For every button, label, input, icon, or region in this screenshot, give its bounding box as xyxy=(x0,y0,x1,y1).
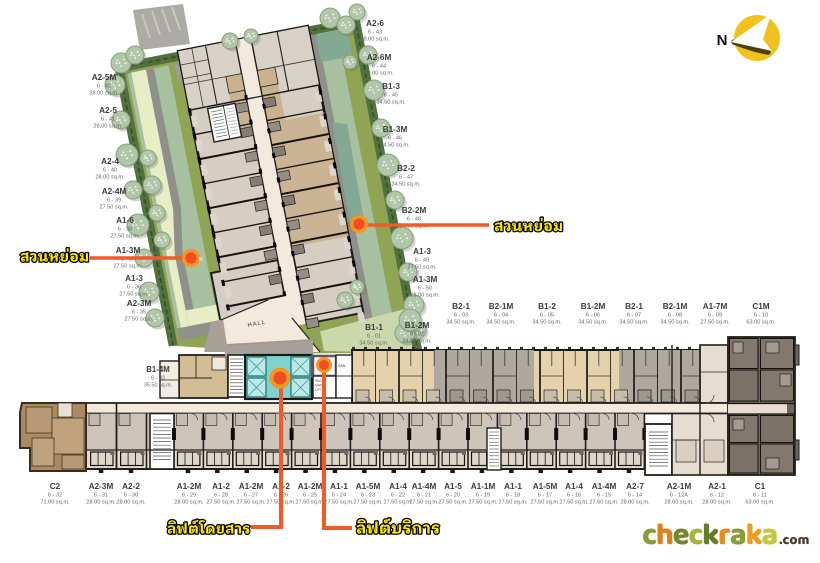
svg-text:6 - 36: 6 - 36 xyxy=(127,285,141,291)
svg-text:A1-3: A1-3 xyxy=(125,274,143,283)
svg-text:27.50 sq.m.: 27.50 sq.m. xyxy=(113,264,143,270)
svg-text:6 - 20: 6 - 20 xyxy=(446,493,460,499)
svg-text:B1-3: B1-3 xyxy=(382,82,400,91)
svg-text:6 - 38: 6 - 38 xyxy=(118,227,132,233)
svg-text:6 - 46: 6 - 46 xyxy=(388,136,402,142)
svg-text:A1-5: A1-5 xyxy=(444,482,462,491)
svg-text:A2-5M: A2-5M xyxy=(92,73,117,82)
svg-text:28.00 sq.m.: 28.00 sq.m. xyxy=(116,500,146,506)
svg-text:LIFT: LIFT xyxy=(315,388,322,392)
svg-text:6 - 16: 6 - 16 xyxy=(567,493,581,499)
svg-text:A1-5M: A1-5M xyxy=(356,482,381,491)
svg-text:6 - 12A: 6 - 12A xyxy=(670,493,688,499)
svg-text:6 - 02: 6 - 02 xyxy=(410,332,424,338)
svg-text:28.00 sq.m.: 28.00 sq.m. xyxy=(702,500,732,506)
svg-text:A2-1: A2-1 xyxy=(708,482,726,491)
svg-text:34.50 sq.m.: 34.50 sq.m. xyxy=(486,320,516,326)
svg-text:27.50 sq.m.: 27.50 sq.m. xyxy=(206,500,236,506)
svg-text:PAS.: PAS. xyxy=(315,379,323,383)
svg-text:6 - 04: 6 - 04 xyxy=(494,313,508,319)
svg-text:27.50 sq.m.: 27.50 sq.m. xyxy=(559,500,589,506)
svg-text:6 - 05: 6 - 05 xyxy=(540,313,554,319)
svg-text:63.00 sq.m.: 63.00 sq.m. xyxy=(745,500,775,506)
svg-text:6 - 43: 6 - 43 xyxy=(368,30,382,36)
svg-text:35.50 sq.m.: 35.50 sq.m. xyxy=(144,383,172,389)
svg-text:A2-4M: A2-4M xyxy=(102,187,127,196)
svg-text:28.00 sq.m.: 28.00 sq.m. xyxy=(86,500,116,506)
svg-text:6 - 09: 6 - 09 xyxy=(708,313,722,319)
svg-text:6 - 31: 6 - 31 xyxy=(94,493,108,499)
svg-text:A2-6: A2-6 xyxy=(366,19,384,28)
svg-text:G: G xyxy=(346,223,350,229)
svg-text:6 - 23: 6 - 23 xyxy=(361,493,375,499)
svg-text:6 - 47: 6 - 47 xyxy=(399,175,413,181)
svg-text:A1-7M: A1-7M xyxy=(703,302,728,311)
svg-text:6 - 25: 6 - 25 xyxy=(303,493,317,499)
svg-text:B2-1M: B2-1M xyxy=(489,302,514,311)
svg-text:6 - 08: 6 - 08 xyxy=(668,313,682,319)
svg-text:28.00 sq.m.: 28.00 sq.m. xyxy=(364,71,394,77)
svg-text:A1-4: A1-4 xyxy=(389,482,407,491)
svg-text:A1-1M: A1-1M xyxy=(471,482,496,491)
svg-text:27.60 sq.m.: 27.60 sq.m. xyxy=(589,500,619,506)
svg-text:6 - 03: 6 - 03 xyxy=(454,313,468,319)
svg-text:6 - 29: 6 - 29 xyxy=(182,493,196,499)
svg-text:6 - 10: 6 - 10 xyxy=(754,313,768,319)
svg-text:27.50 sq.m.: 27.50 sq.m. xyxy=(407,265,437,271)
svg-text:27.50 sq.m.: 27.50 sq.m. xyxy=(324,500,354,506)
svg-text:A1-4M: A1-4M xyxy=(412,482,437,491)
svg-text:28.00 sq.m.: 28.00 sq.m. xyxy=(174,500,204,506)
svg-text:6 - 19: 6 - 19 xyxy=(476,493,490,499)
svg-text:34.50 sq.m.: 34.50 sq.m. xyxy=(532,320,562,326)
svg-text:A2-3M: A2-3M xyxy=(89,482,114,491)
svg-text:A1-2M: A1-2M xyxy=(239,482,264,491)
svg-text:A2-2: A2-2 xyxy=(122,482,140,491)
svg-text:27.50 sq.m.: 27.50 sq.m. xyxy=(295,500,325,506)
svg-text:B1-2: B1-2 xyxy=(538,302,556,311)
svg-text:6 - 44: 6 - 44 xyxy=(372,64,386,70)
svg-text:A2-4: A2-4 xyxy=(101,157,119,166)
svg-text:B2-2M: B2-2M xyxy=(402,206,427,215)
svg-text:71.00 sq.m.: 71.00 sq.m. xyxy=(40,500,70,506)
svg-text:6 - 32: 6 - 32 xyxy=(48,493,62,499)
svg-text:6 - 24: 6 - 24 xyxy=(332,493,346,499)
svg-text:6 - 41: 6 - 41 xyxy=(101,117,115,123)
svg-text:B2-2: B2-2 xyxy=(397,164,415,173)
svg-text:A1-4M: A1-4M xyxy=(592,482,617,491)
svg-text:34.50 sq.m.: 34.50 sq.m. xyxy=(402,339,432,345)
svg-text:A1-2: A1-2 xyxy=(212,482,230,491)
svg-text:A1-2M: A1-2M xyxy=(177,482,202,491)
svg-text:27.50 sq.m.: 27.50 sq.m. xyxy=(353,500,383,506)
svg-text:28.00 sq.m.: 28.00 sq.m. xyxy=(360,37,390,43)
svg-text:27.50 sq.m.: 27.50 sq.m. xyxy=(236,500,266,506)
svg-text:28.00 sq.m.: 28.00 sq.m. xyxy=(410,293,440,299)
svg-text:6 - 22: 6 - 22 xyxy=(391,493,405,499)
svg-text:6 - 27: 6 - 27 xyxy=(244,493,258,499)
svg-text:27.50 sq.m.: 27.50 sq.m. xyxy=(700,320,730,326)
svg-text:B1-4M: B1-4M xyxy=(146,365,169,374)
svg-text:6 - 17: 6 - 17 xyxy=(538,493,552,499)
svg-text:27.50 sq.m.: 27.50 sq.m. xyxy=(124,317,154,323)
svg-text:A1-5M: A1-5M xyxy=(533,482,558,491)
svg-text:B1-2M: B1-2M xyxy=(581,302,606,311)
svg-text:A1-3M: A1-3M xyxy=(116,246,141,255)
svg-text:27.50 sq.m.: 27.50 sq.m. xyxy=(468,500,498,506)
svg-text:A1-3M: A1-3M xyxy=(413,275,438,284)
svg-text:27.50 sq.m.: 27.50 sq.m. xyxy=(498,500,528,506)
svg-text:34.50 sq.m.: 34.50 sq.m. xyxy=(578,320,608,326)
svg-text:A1-6: A1-6 xyxy=(116,216,134,225)
svg-text:27.50 sq.m.: 27.50 sq.m. xyxy=(409,500,439,506)
svg-text:SAN.: SAN. xyxy=(338,364,346,368)
svg-text:6 - 28: 6 - 28 xyxy=(214,493,228,499)
svg-text:6 - 50: 6 - 50 xyxy=(418,286,432,292)
svg-text:6 - 42: 6 - 42 xyxy=(97,84,111,90)
svg-text:6 - 33: 6 - 33 xyxy=(151,376,165,382)
svg-text:34.50 sq.m.: 34.50 sq.m. xyxy=(391,182,421,188)
svg-text:6 - 30: 6 - 30 xyxy=(124,493,138,499)
svg-text:A1-3: A1-3 xyxy=(413,247,431,256)
svg-text:6 - 39: 6 - 39 xyxy=(107,198,121,204)
svg-text:6 - 07: 6 - 07 xyxy=(627,313,641,319)
svg-text:6 - 06: 6 - 06 xyxy=(586,313,600,319)
svg-text:B2-1M: B2-1M xyxy=(663,302,688,311)
svg-text:27.50 sq.m.: 27.50 sq.m. xyxy=(99,205,129,211)
svg-text:B2-1: B2-1 xyxy=(625,302,643,311)
svg-text:34.50 sq.m.: 34.50 sq.m. xyxy=(359,341,389,347)
svg-text:6 - 01: 6 - 01 xyxy=(367,334,381,340)
svg-text:28.00 sq.m.: 28.00 sq.m. xyxy=(93,124,123,130)
svg-text:6 - 12: 6 - 12 xyxy=(710,493,724,499)
svg-text:6 - 11: 6 - 11 xyxy=(753,493,767,499)
svg-text:N: N xyxy=(717,32,728,49)
svg-text:B1-2M: B1-2M xyxy=(405,321,430,330)
svg-text:C1M: C1M xyxy=(752,302,769,311)
svg-text:C2: C2 xyxy=(50,482,61,491)
svg-text:6 - 40: 6 - 40 xyxy=(103,168,117,174)
svg-text:A1-1: A1-1 xyxy=(330,482,348,491)
svg-text:34.50 sq.m.: 34.50 sq.m. xyxy=(380,143,410,149)
svg-text:6 - 15: 6 - 15 xyxy=(597,493,611,499)
svg-text:B2-1: B2-1 xyxy=(452,302,470,311)
svg-text:34.50 sq.m.: 34.50 sq.m. xyxy=(619,320,649,326)
svg-text:63.00 sq.m.: 63.00 sq.m. xyxy=(746,320,776,326)
svg-text:6 - 35: 6 - 35 xyxy=(132,310,146,316)
svg-text:N: N xyxy=(199,257,203,263)
svg-text:34.50 sq.m.: 34.50 sq.m. xyxy=(660,320,690,326)
svg-text:B1-1: B1-1 xyxy=(365,323,383,332)
svg-text:27.50 sq.m.: 27.50 sq.m. xyxy=(530,500,560,506)
svg-text:A1-2M: A1-2M xyxy=(298,482,323,491)
svg-text:C1: C1 xyxy=(755,482,766,491)
svg-text:6 - 45: 6 - 45 xyxy=(384,93,398,99)
svg-text:6 - 48: 6 - 48 xyxy=(407,217,421,223)
svg-text:6 - 21: 6 - 21 xyxy=(417,493,431,499)
svg-text:A1-4: A1-4 xyxy=(565,482,583,491)
svg-text:28.00 sq.m.: 28.00 sq.m. xyxy=(95,175,125,181)
svg-text:6 - 49: 6 - 49 xyxy=(415,258,429,264)
svg-text:34.50 sq.m.: 34.50 sq.m. xyxy=(446,320,476,326)
svg-text:28.00 sq.m.: 28.00 sq.m. xyxy=(664,500,694,506)
svg-text:6 - 14: 6 - 14 xyxy=(628,493,642,499)
svg-text:A2-1M: A2-1M xyxy=(667,482,692,491)
svg-text:34.50 sq.m.: 34.50 sq.m. xyxy=(376,100,406,106)
svg-text:27.50 sq.m.: 27.50 sq.m. xyxy=(119,292,149,298)
svg-text:28.00 sq.m.: 28.00 sq.m. xyxy=(89,91,119,97)
svg-text:A1-1: A1-1 xyxy=(504,482,522,491)
svg-text:27.50 sq.m.: 27.50 sq.m. xyxy=(110,234,140,240)
svg-text:A2-5: A2-5 xyxy=(99,106,117,115)
svg-text:A2-7: A2-7 xyxy=(626,482,644,491)
svg-text:28.00 sq.m.: 28.00 sq.m. xyxy=(620,500,650,506)
svg-text:A2-3M: A2-3M xyxy=(127,299,152,308)
svg-text:B1-3M: B1-3M xyxy=(383,125,408,134)
svg-text:6 - 18: 6 - 18 xyxy=(506,493,520,499)
svg-text:A2-6M: A2-6M xyxy=(367,53,392,62)
svg-text:27.50 sq.m.: 27.50 sq.m. xyxy=(438,500,468,506)
